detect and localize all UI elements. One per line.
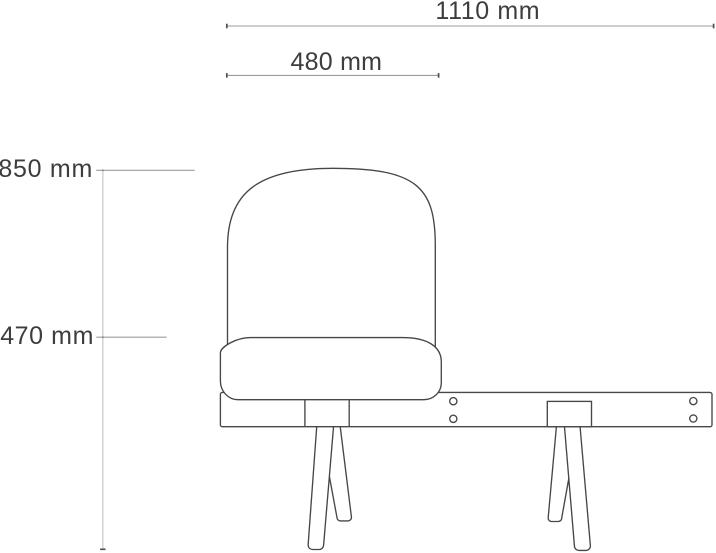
svg-text:470 mm: 470 mm [0, 322, 93, 350]
svg-text:1110 mm: 1110 mm [435, 0, 539, 25]
svg-text:480 mm: 480 mm [291, 48, 383, 76]
svg-text:850 mm: 850 mm [0, 155, 92, 183]
